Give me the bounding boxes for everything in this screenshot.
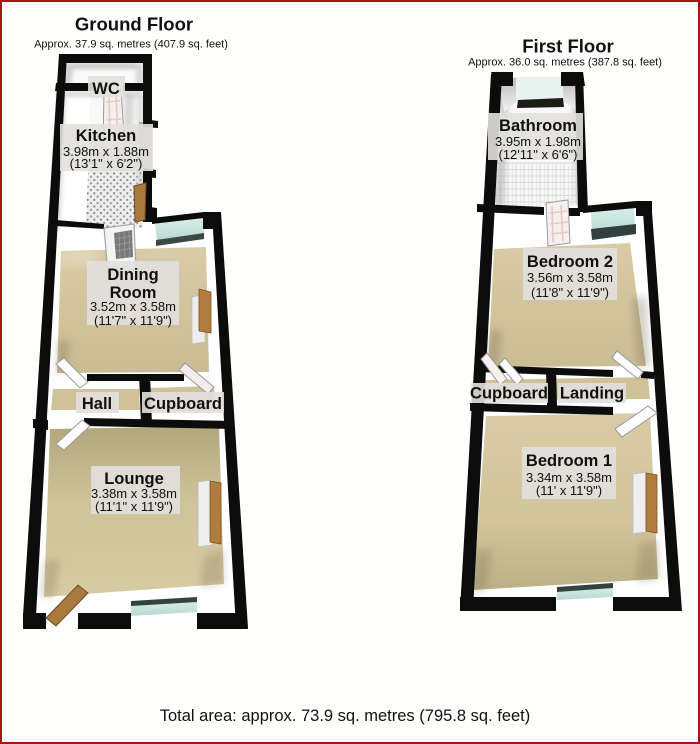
svg-text:Dining: Dining [107, 266, 158, 284]
svg-text:Bedroom 1: Bedroom 1 [526, 452, 612, 470]
svg-text:(11'1" x 11'9"): (11'1" x 11'9") [95, 499, 173, 514]
svg-text:(11' x 11'9"): (11' x 11'9") [536, 483, 602, 498]
svg-text:(11'7" x 11'9"): (11'7" x 11'9") [94, 313, 172, 328]
svg-text:Kitchen: Kitchen [76, 127, 137, 145]
svg-text:3.52m x 3.58m: 3.52m x 3.58m [90, 299, 176, 314]
svg-text:Cupboard: Cupboard [470, 385, 548, 403]
svg-text:(11'8" x 11'9"): (11'8" x 11'9") [531, 285, 609, 300]
svg-text:Bathroom: Bathroom [499, 117, 577, 135]
svg-text:Total area: approx. 73.9 sq. m: Total area: approx. 73.9 sq. metres (795… [160, 707, 531, 725]
svg-text:Approx. 36.0 sq. metres (387.8: Approx. 36.0 sq. metres (387.8 sq. feet) [468, 57, 662, 69]
svg-text:(12'11" x 6'6"): (12'11" x 6'6") [499, 147, 578, 162]
svg-text:Bedroom 2: Bedroom 2 [527, 253, 613, 271]
svg-text:Ground Floor: Ground Floor [75, 14, 193, 35]
svg-text:3.56m x 3.58m: 3.56m x 3.58m [527, 270, 613, 285]
svg-text:First Floor: First Floor [522, 36, 613, 57]
svg-text:Hall: Hall [82, 395, 112, 413]
svg-text:Approx. 37.9 sq. metres (407.9: Approx. 37.9 sq. metres (407.9 sq. feet) [34, 39, 228, 51]
svg-text:(13'1" x 6'2"): (13'1" x 6'2") [70, 156, 143, 171]
svg-text:WC: WC [92, 80, 120, 98]
svg-text:Landing: Landing [560, 385, 624, 403]
svg-text:Cupboard: Cupboard [144, 395, 222, 413]
